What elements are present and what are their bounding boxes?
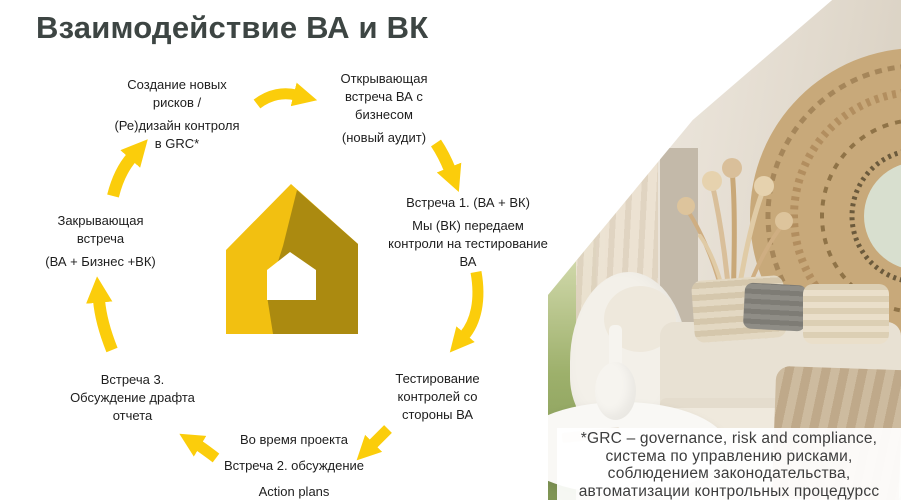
label-create-risks: Создание новых рисков / (Ре)дизайн контр…	[88, 76, 266, 153]
arrow-left-lower-icon	[99, 300, 112, 350]
label-opening-meeting: Открывающая встреча ВА с бизнесом (новый…	[325, 70, 443, 147]
arrow-left-upper-icon	[113, 157, 132, 196]
interior-photo	[548, 0, 901, 500]
label-testing: Тестирование контролей со стороны ВА	[380, 370, 495, 424]
footnote-line: *GRC – governance, risk and compliance,	[557, 430, 901, 448]
slide: Взаимодействие ВА и ВК Создание новых ри…	[0, 0, 901, 500]
footnote-line: автоматизации контрольных процедурсс	[557, 483, 901, 500]
arrow-right-lower-icon	[464, 272, 478, 336]
label-closing-meeting: Закрывающая встреча (ВА + Бизнес +ВК)	[32, 212, 169, 271]
house-logo-icon	[226, 184, 358, 334]
label-meeting-1: Встреча 1. (ВА + ВК) Мы (ВК) передаем ко…	[388, 194, 548, 271]
label-during-project: Во время проекта Встреча 2. обсуждение A…	[208, 431, 380, 500]
footnote-line: система по управлению рисками,	[557, 448, 901, 466]
grc-footnote: *GRC – governance, risk and compliance, …	[557, 428, 901, 500]
photo-cream-pillow	[803, 284, 889, 344]
arrow-right-upper-icon	[436, 143, 450, 170]
photo-vase	[595, 362, 636, 420]
photo-gray-pillow	[743, 282, 807, 331]
footnote-line: соблюдением законодательства,	[557, 465, 901, 483]
label-meeting-3: Встреча 3. Обсуждение драфта отчета	[55, 371, 210, 425]
